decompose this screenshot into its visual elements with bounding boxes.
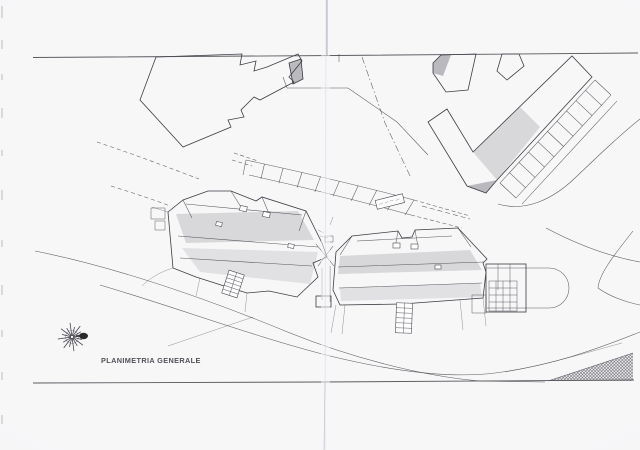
boundary-dash-near-l-corner <box>422 206 470 219</box>
building-a-upper-shading <box>176 211 314 243</box>
garage-small-annex <box>472 295 486 313</box>
west-terrace-box <box>151 208 165 219</box>
chimney <box>411 244 418 249</box>
west-terrace-box-2 <box>155 221 165 230</box>
building-a-west <box>151 191 327 312</box>
terrain-and-roads <box>35 57 640 382</box>
building-block-north <box>433 54 524 92</box>
existing-building-northwest <box>140 54 303 147</box>
building-l-shaped <box>428 56 617 204</box>
building-a-lower-shading <box>182 248 318 284</box>
frame-bottom-line <box>33 380 634 383</box>
chimney <box>216 221 223 226</box>
contour-segment-near-compass <box>168 317 253 346</box>
slope-wedge-southeast <box>548 353 633 381</box>
fold-crease <box>321 0 330 450</box>
scanned-page: PLANIMETRIA GENERALE <box>0 0 640 450</box>
l-building-arm-shading <box>473 107 540 180</box>
building-b-upper-shading <box>338 250 482 274</box>
existing-building-northwest-roof <box>140 54 302 147</box>
north-block-east <box>497 54 524 80</box>
building-b-east <box>331 228 569 334</box>
site-plan-drawing <box>0 0 640 450</box>
chimney <box>288 243 295 248</box>
compass-east-pointer <box>79 333 88 339</box>
boundary-dashdot <box>362 57 411 178</box>
north-block-west-shading <box>433 55 451 76</box>
road-east-upper <box>546 228 640 262</box>
chimney <box>393 243 400 248</box>
elevation-annotation-box <box>375 194 404 210</box>
chimney <box>262 211 270 217</box>
garage-annex <box>472 264 569 313</box>
frame-top-line <box>33 53 638 58</box>
drawing-title: PLANIMETRIA GENERALE <box>101 356 201 365</box>
path-upper-left-b <box>111 186 170 206</box>
drawing-frame <box>33 53 638 383</box>
chimney <box>435 265 441 269</box>
path-upper-left-a <box>97 142 199 179</box>
road-east-v <box>598 231 640 305</box>
chimney <box>239 205 247 211</box>
l-building-corner-shading <box>467 180 497 193</box>
road-top-center <box>283 77 428 155</box>
stairs-building-b <box>395 303 412 334</box>
compass-rose-icon <box>56 321 88 353</box>
